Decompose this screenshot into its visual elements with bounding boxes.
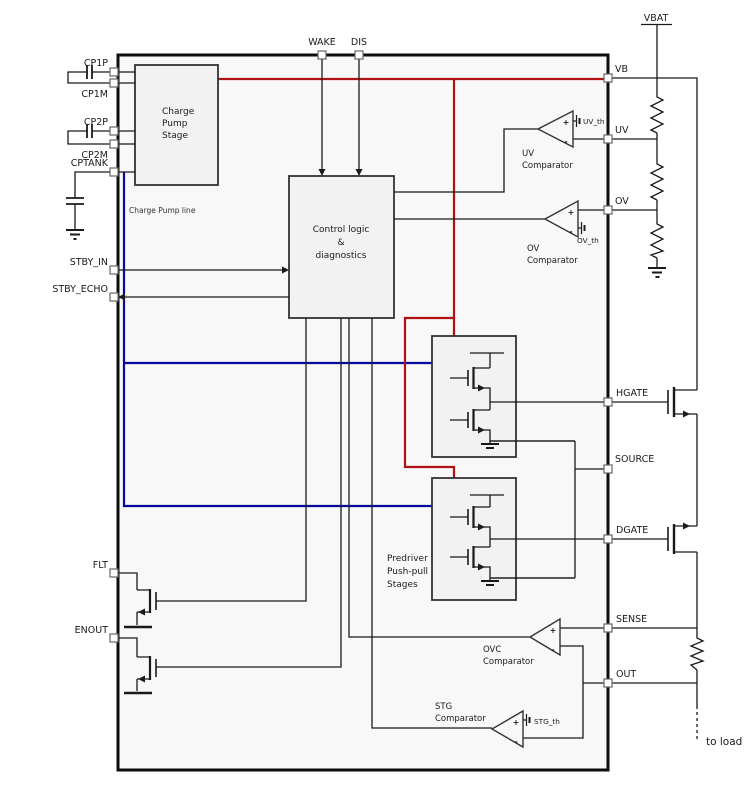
ov-plus-sign: +	[568, 208, 575, 217]
charge-pump-caption-2: Pump	[162, 119, 188, 129]
divider-resistor-top	[651, 95, 663, 133]
charge-pump-caption-1: Charge	[162, 107, 195, 117]
uv-threshold-label: UV_th	[583, 117, 604, 126]
pin-stby-in	[110, 266, 118, 274]
stg-comparator-label-2: Comparator	[435, 714, 486, 724]
pin-wake	[318, 51, 326, 59]
pin-label-hgate: HGATE	[616, 388, 648, 399]
pin-label-dgate: DGATE	[616, 525, 648, 536]
ov-minus-sign: -	[569, 227, 572, 236]
uv-comparator-label-2: Comparator	[522, 161, 573, 171]
dgate-external-fet	[668, 523, 690, 555]
pin-sense	[604, 624, 612, 632]
cptank-ground-symbol	[66, 230, 84, 239]
pin-stby-echo	[110, 293, 118, 301]
charge-pump-line-note: Charge Pump line	[129, 206, 196, 215]
external-capacitors	[66, 65, 92, 204]
divider-resistor-middle	[651, 162, 663, 200]
predriver-caption-3: Stages	[387, 580, 418, 590]
pin-label-dis: DIS	[351, 37, 367, 48]
pin-label-flt: FLT	[93, 560, 108, 571]
vbat-label: VBAT	[644, 13, 669, 24]
pin-hgate	[604, 398, 612, 406]
stg-minus-sign: -	[514, 737, 517, 746]
pin-label-cp2p: CP2P	[84, 117, 108, 128]
pin-label-cp1m: CP1M	[81, 89, 108, 100]
sense-resistor	[691, 636, 703, 670]
pin-label-out: OUT	[616, 669, 636, 680]
ovc-comparator-label-1: OVC	[483, 645, 501, 655]
pin-uv	[604, 135, 612, 143]
mosfet-arrow-icon	[683, 411, 690, 418]
control-logic-caption-3: diagnostics	[315, 251, 366, 261]
schematic-canvas: WAKE DIS CP1P CP1M CP2P CP2M CPTANK STBY…	[0, 0, 756, 791]
ov-comparator-label-1: OV	[527, 244, 540, 254]
pin-out	[604, 679, 612, 687]
predriver-hgate-block	[432, 336, 516, 457]
pin-label-cptank: CPTANK	[71, 158, 109, 169]
uv-comparator-label-1: UV	[522, 149, 534, 159]
predriver-caption-2: Push-pull	[387, 567, 428, 577]
pin-ov	[604, 206, 612, 214]
hgate-external-fet	[668, 387, 690, 418]
uv-plus-sign: +	[563, 118, 570, 127]
ov-threshold-label: OV_th	[577, 236, 599, 245]
to-load-label: to load	[706, 736, 742, 748]
stg-comparator-label-1: STG	[435, 702, 452, 712]
pin-cptank	[110, 168, 118, 176]
mosfet-arrow-icon	[683, 523, 690, 530]
pin-label-uv: UV	[615, 125, 629, 136]
pin-dgate	[604, 535, 612, 543]
pin-label-wake: WAKE	[308, 37, 336, 48]
pin-label-stby-echo: STBY_ECHO	[52, 284, 108, 295]
pin-cp2m	[110, 140, 118, 148]
pin-label-vb: VB	[615, 64, 628, 75]
pin-label-enout: ENOUT	[75, 625, 109, 636]
control-logic-caption-1: Control logic	[313, 225, 370, 235]
pin-label-ov: OV	[615, 196, 629, 207]
control-logic-caption-2: &	[337, 238, 344, 248]
stg-threshold-label: STG_th	[534, 717, 560, 726]
pin-flt	[110, 569, 118, 577]
ovc-plus-sign: +	[550, 626, 557, 635]
predriver-caption-1: Predriver	[387, 554, 428, 564]
charge-pump-caption-3: Stage	[162, 131, 188, 141]
pin-label-stby-in: STBY_IN	[70, 257, 108, 268]
divider-resistor-bottom	[651, 222, 663, 258]
ovc-comparator-label-2: Comparator	[483, 657, 534, 667]
pin-vb	[604, 74, 612, 82]
divider-ground-symbol	[648, 268, 666, 277]
gate-driver-block-diagram: WAKE DIS CP1P CP1M CP2P CP2M CPTANK STBY…	[0, 0, 756, 791]
pin-label-sense: SENSE	[616, 614, 647, 625]
uv-minus-sign: -	[564, 137, 567, 146]
pin-label-source: SOURCE	[615, 454, 654, 465]
stg-plus-sign: +	[513, 718, 520, 727]
pin-cp2p	[110, 127, 118, 135]
pin-source	[604, 465, 612, 473]
pin-cp1p	[110, 68, 118, 76]
pin-enout	[110, 634, 118, 642]
pin-cp1m	[110, 79, 118, 87]
pin-dis	[355, 51, 363, 59]
ov-comparator-label-2: Comparator	[527, 256, 578, 266]
ovc-minus-sign: -	[551, 645, 554, 654]
pin-label-cp1p: CP1P	[84, 58, 108, 69]
